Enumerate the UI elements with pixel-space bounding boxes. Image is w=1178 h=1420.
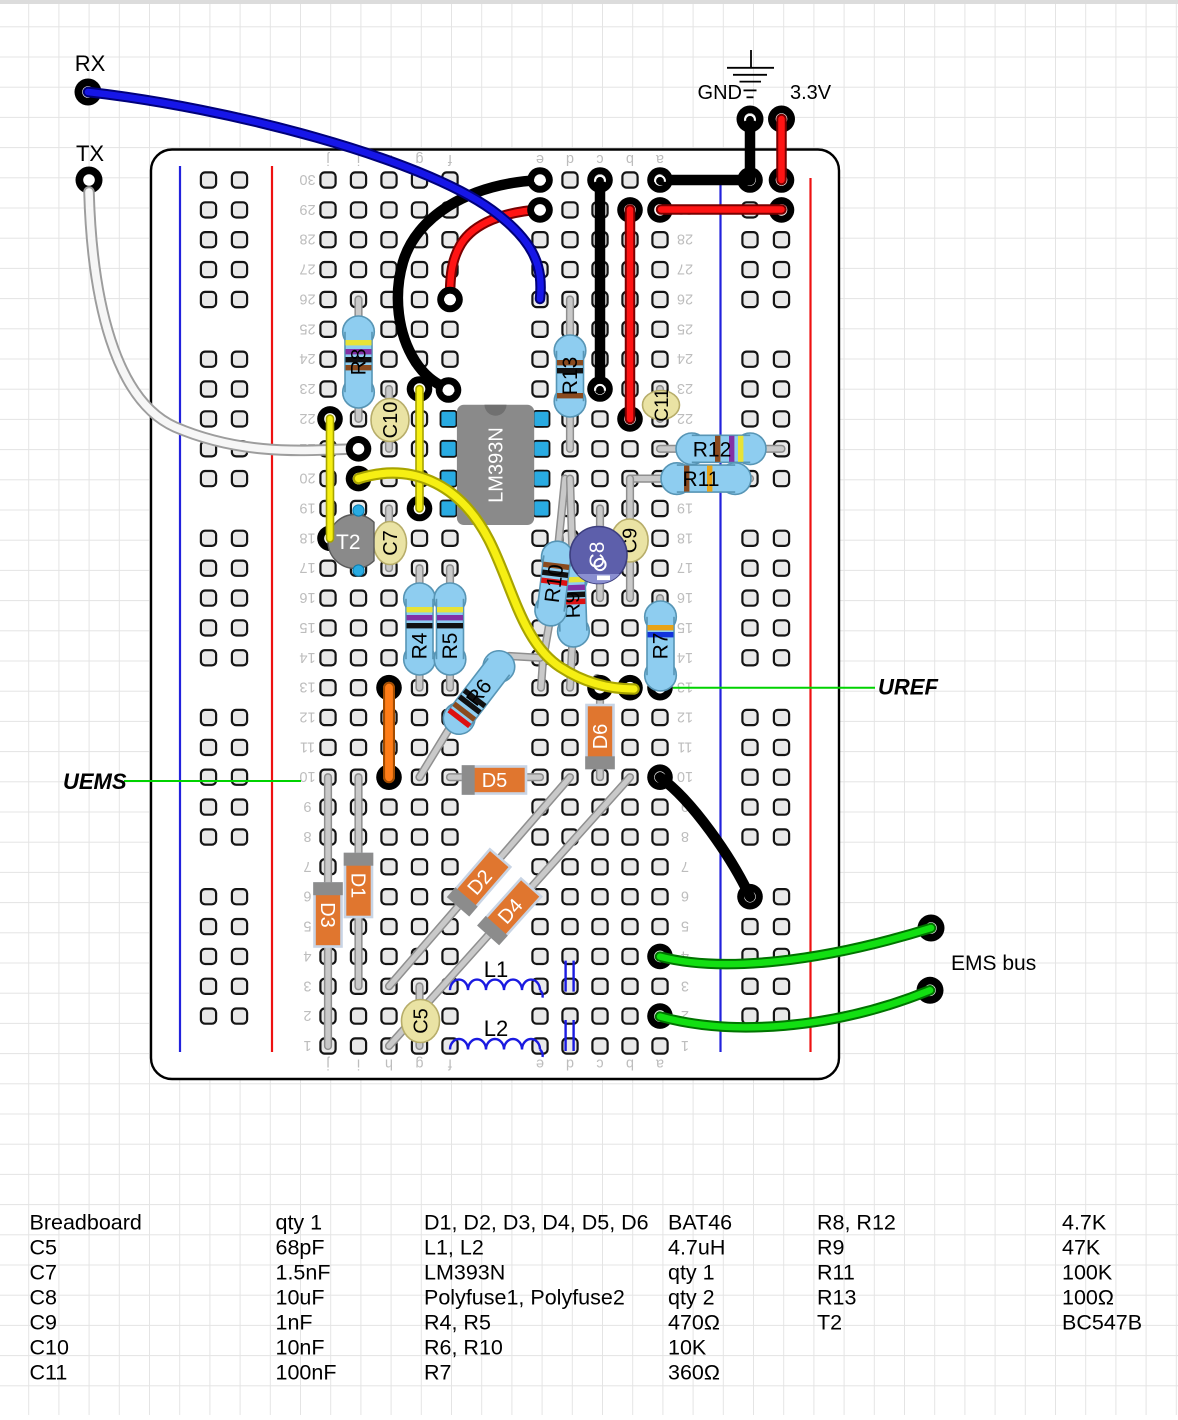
svg-text:470Ω: 470Ω xyxy=(668,1311,720,1335)
svg-text:RX: RX xyxy=(75,51,106,76)
svg-text:R7: R7 xyxy=(424,1361,451,1385)
svg-text:11: 11 xyxy=(300,738,315,754)
svg-text:6: 6 xyxy=(681,888,689,904)
svg-text:a: a xyxy=(655,1056,664,1072)
svg-text:2: 2 xyxy=(303,1007,311,1023)
svg-text:R13: R13 xyxy=(559,357,582,396)
svg-text:qty 1: qty 1 xyxy=(668,1261,715,1285)
svg-text:R7: R7 xyxy=(650,633,673,660)
svg-text:12: 12 xyxy=(677,709,693,725)
svg-text:16: 16 xyxy=(299,589,315,605)
svg-text:16: 16 xyxy=(677,589,693,605)
svg-text:3.3V: 3.3V xyxy=(790,82,832,104)
svg-text:4.7uH: 4.7uH xyxy=(668,1236,725,1260)
svg-text:L2: L2 xyxy=(484,1016,508,1041)
svg-text:14: 14 xyxy=(299,649,315,665)
svg-text:d: d xyxy=(566,1056,574,1072)
svg-text:R11: R11 xyxy=(683,468,720,491)
svg-text:C10: C10 xyxy=(380,402,402,439)
svg-text:18: 18 xyxy=(677,529,693,545)
svg-text:b: b xyxy=(626,151,634,167)
svg-text:T2: T2 xyxy=(817,1311,842,1335)
svg-text:9: 9 xyxy=(303,798,311,814)
svg-text:19: 19 xyxy=(299,500,315,516)
svg-text:g: g xyxy=(415,1056,423,1072)
svg-text:22: 22 xyxy=(299,410,315,426)
svg-text:11: 11 xyxy=(677,738,692,754)
svg-text:i: i xyxy=(357,1056,360,1072)
svg-text:d: d xyxy=(566,151,574,167)
svg-text:b: b xyxy=(626,1056,634,1072)
svg-text:qty 1: qty 1 xyxy=(276,1211,323,1235)
svg-text:GND: GND xyxy=(698,82,742,104)
svg-text:R13: R13 xyxy=(817,1286,856,1310)
svg-text:47K: 47K xyxy=(1062,1236,1101,1260)
svg-text:D1, D2, D3, D4, D5, D6: D1, D2, D3, D4, D5, D6 xyxy=(424,1211,649,1235)
svg-text:c: c xyxy=(596,151,603,167)
svg-text:100Ω: 100Ω xyxy=(1062,1286,1114,1310)
svg-text:10: 10 xyxy=(299,768,315,784)
svg-text:e: e xyxy=(536,1056,544,1072)
svg-text:1nF: 1nF xyxy=(276,1311,313,1335)
svg-text:C11: C11 xyxy=(652,388,673,421)
svg-text:68pF: 68pF xyxy=(276,1236,325,1260)
svg-text:Breadboard: Breadboard xyxy=(30,1211,142,1235)
svg-text:Polyfuse1, Polyfuse2: Polyfuse1, Polyfuse2 xyxy=(424,1286,625,1310)
svg-text:C8: C8 xyxy=(586,542,609,569)
svg-text:h: h xyxy=(385,1056,393,1072)
svg-text:D3: D3 xyxy=(316,902,338,928)
svg-text:1.5nF: 1.5nF xyxy=(276,1261,331,1285)
svg-text:28: 28 xyxy=(677,231,693,247)
svg-text:3: 3 xyxy=(681,977,689,993)
svg-text:17: 17 xyxy=(677,559,693,575)
svg-text:R8: R8 xyxy=(348,349,371,376)
svg-text:24: 24 xyxy=(299,350,315,366)
svg-text:R4: R4 xyxy=(409,632,432,659)
svg-text:15: 15 xyxy=(299,619,315,635)
svg-text:R4, R5: R4, R5 xyxy=(424,1311,491,1335)
svg-text:25: 25 xyxy=(677,320,693,336)
svg-text:30: 30 xyxy=(299,171,315,187)
svg-text:LM393N: LM393N xyxy=(486,427,508,503)
svg-text:R5: R5 xyxy=(439,633,462,660)
svg-text:19: 19 xyxy=(677,500,693,516)
svg-text:C9: C9 xyxy=(30,1311,57,1335)
svg-text:T2: T2 xyxy=(336,531,361,554)
svg-text:27: 27 xyxy=(677,261,693,277)
svg-text:26: 26 xyxy=(677,291,693,307)
svg-text:23: 23 xyxy=(677,380,693,396)
svg-text:c: c xyxy=(596,1056,603,1072)
svg-text:j: j xyxy=(326,1056,330,1072)
svg-text:4: 4 xyxy=(303,947,311,963)
svg-text:j: j xyxy=(326,151,330,167)
svg-text:20: 20 xyxy=(299,470,315,486)
svg-text:e: e xyxy=(536,151,544,167)
svg-text:C10: C10 xyxy=(30,1336,69,1360)
svg-text:5: 5 xyxy=(681,918,689,934)
svg-text:7: 7 xyxy=(303,858,311,874)
svg-text:22: 22 xyxy=(677,410,693,426)
svg-text:1: 1 xyxy=(681,1037,689,1053)
svg-text:L1: L1 xyxy=(484,957,508,982)
svg-text:10: 10 xyxy=(677,768,693,784)
svg-text:R8, R12: R8, R12 xyxy=(817,1211,896,1235)
svg-text:4.7K: 4.7K xyxy=(1062,1211,1107,1235)
svg-text:8: 8 xyxy=(681,828,689,844)
svg-text:14: 14 xyxy=(677,649,693,665)
svg-text:EMS bus: EMS bus xyxy=(951,952,1036,975)
svg-text:3: 3 xyxy=(303,977,311,993)
svg-text:18: 18 xyxy=(299,529,315,545)
svg-text:23: 23 xyxy=(299,380,315,396)
svg-text:C5: C5 xyxy=(411,1008,433,1034)
svg-text:100K: 100K xyxy=(1062,1261,1113,1285)
svg-text:27: 27 xyxy=(299,261,315,277)
svg-text:qty 2: qty 2 xyxy=(668,1286,715,1310)
svg-text:7: 7 xyxy=(681,858,689,874)
svg-text:28: 28 xyxy=(299,231,315,247)
svg-text:100nF: 100nF xyxy=(276,1361,337,1385)
svg-text:12: 12 xyxy=(299,709,315,725)
svg-text:g: g xyxy=(415,151,423,167)
svg-text:10nF: 10nF xyxy=(276,1336,325,1360)
svg-text:D6: D6 xyxy=(590,724,612,750)
svg-text:15: 15 xyxy=(677,619,693,635)
svg-text:BAT46: BAT46 xyxy=(668,1211,732,1235)
svg-text:D5: D5 xyxy=(482,770,508,792)
svg-text:6: 6 xyxy=(303,888,311,904)
svg-text:R12: R12 xyxy=(693,438,732,461)
svg-text:a: a xyxy=(655,151,664,167)
svg-text:UREF: UREF xyxy=(878,675,938,700)
svg-text:360Ω: 360Ω xyxy=(668,1361,720,1385)
svg-text:10K: 10K xyxy=(668,1336,707,1360)
svg-text:C8: C8 xyxy=(30,1286,58,1310)
svg-text:R6, R10: R6, R10 xyxy=(424,1336,503,1360)
svg-text:L1, L2: L1, L2 xyxy=(424,1236,484,1260)
svg-text:13: 13 xyxy=(299,679,315,695)
svg-text:C7: C7 xyxy=(380,530,402,556)
svg-text:LM393N: LM393N xyxy=(424,1261,505,1285)
svg-text:C5: C5 xyxy=(30,1236,58,1260)
svg-text:24: 24 xyxy=(677,350,693,366)
svg-text:29: 29 xyxy=(299,201,315,217)
svg-text:10uF: 10uF xyxy=(276,1286,325,1310)
svg-text:26: 26 xyxy=(299,291,315,307)
svg-text:C11: C11 xyxy=(30,1361,68,1385)
svg-text:5: 5 xyxy=(303,918,311,934)
svg-text:TX: TX xyxy=(76,141,104,166)
svg-text:1: 1 xyxy=(303,1037,311,1053)
svg-text:25: 25 xyxy=(299,320,315,336)
svg-text:C7: C7 xyxy=(30,1261,57,1285)
svg-text:17: 17 xyxy=(299,559,315,575)
svg-text:R11: R11 xyxy=(817,1261,855,1285)
svg-text:8: 8 xyxy=(303,828,311,844)
svg-text:R9: R9 xyxy=(817,1236,844,1260)
svg-text:R10: R10 xyxy=(541,563,569,604)
svg-text:D1: D1 xyxy=(347,873,369,899)
svg-text:UEMS: UEMS xyxy=(63,769,127,794)
svg-text:BC547B: BC547B xyxy=(1062,1311,1142,1335)
